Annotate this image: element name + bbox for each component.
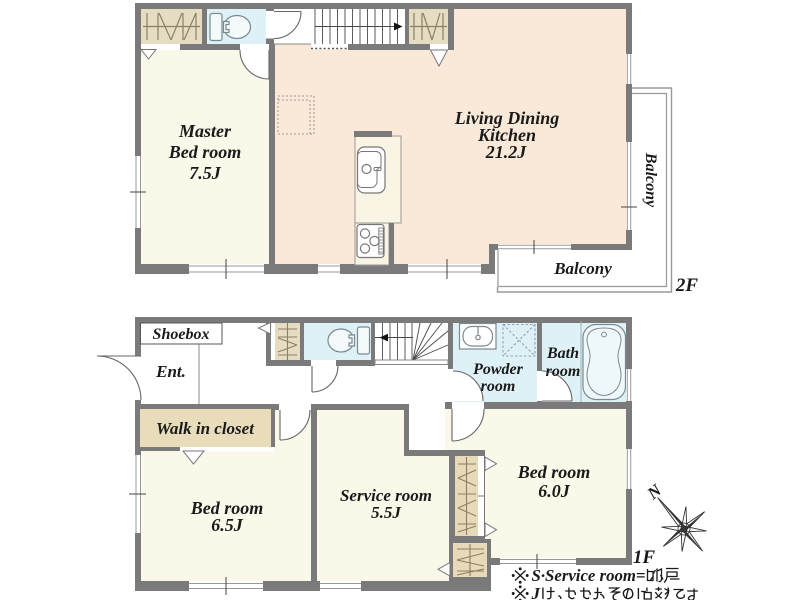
svg-text:Bath: Bath xyxy=(546,345,579,362)
svg-text:1F: 1F xyxy=(633,547,656,568)
svg-text:6.0J: 6.0J xyxy=(538,481,571,501)
svg-text:S·Service room=: S·Service room= xyxy=(532,566,646,585)
svg-text:Bed room: Bed room xyxy=(168,142,242,162)
svg-text:Powder: Powder xyxy=(472,361,524,378)
svg-text:Balcony: Balcony xyxy=(642,152,659,208)
svg-text:Bed room: Bed room xyxy=(517,462,591,482)
svg-text:Ent.: Ent. xyxy=(155,362,186,381)
svg-text:5.5J: 5.5J xyxy=(371,503,401,522)
svg-text:room: room xyxy=(546,363,581,380)
svg-text:2F: 2F xyxy=(675,275,699,296)
svg-text:J: J xyxy=(531,584,541,600)
svg-text:6.5J: 6.5J xyxy=(211,515,244,535)
svg-text:21.2J: 21.2J xyxy=(485,142,528,162)
svg-text:Walk in closet: Walk in closet xyxy=(156,419,255,438)
svg-text:Shoebox: Shoebox xyxy=(153,326,210,343)
svg-text:7.5J: 7.5J xyxy=(189,163,222,183)
svg-text:Balcony: Balcony xyxy=(553,259,612,278)
svg-text:room: room xyxy=(481,378,516,395)
svg-text:Master: Master xyxy=(178,121,232,141)
